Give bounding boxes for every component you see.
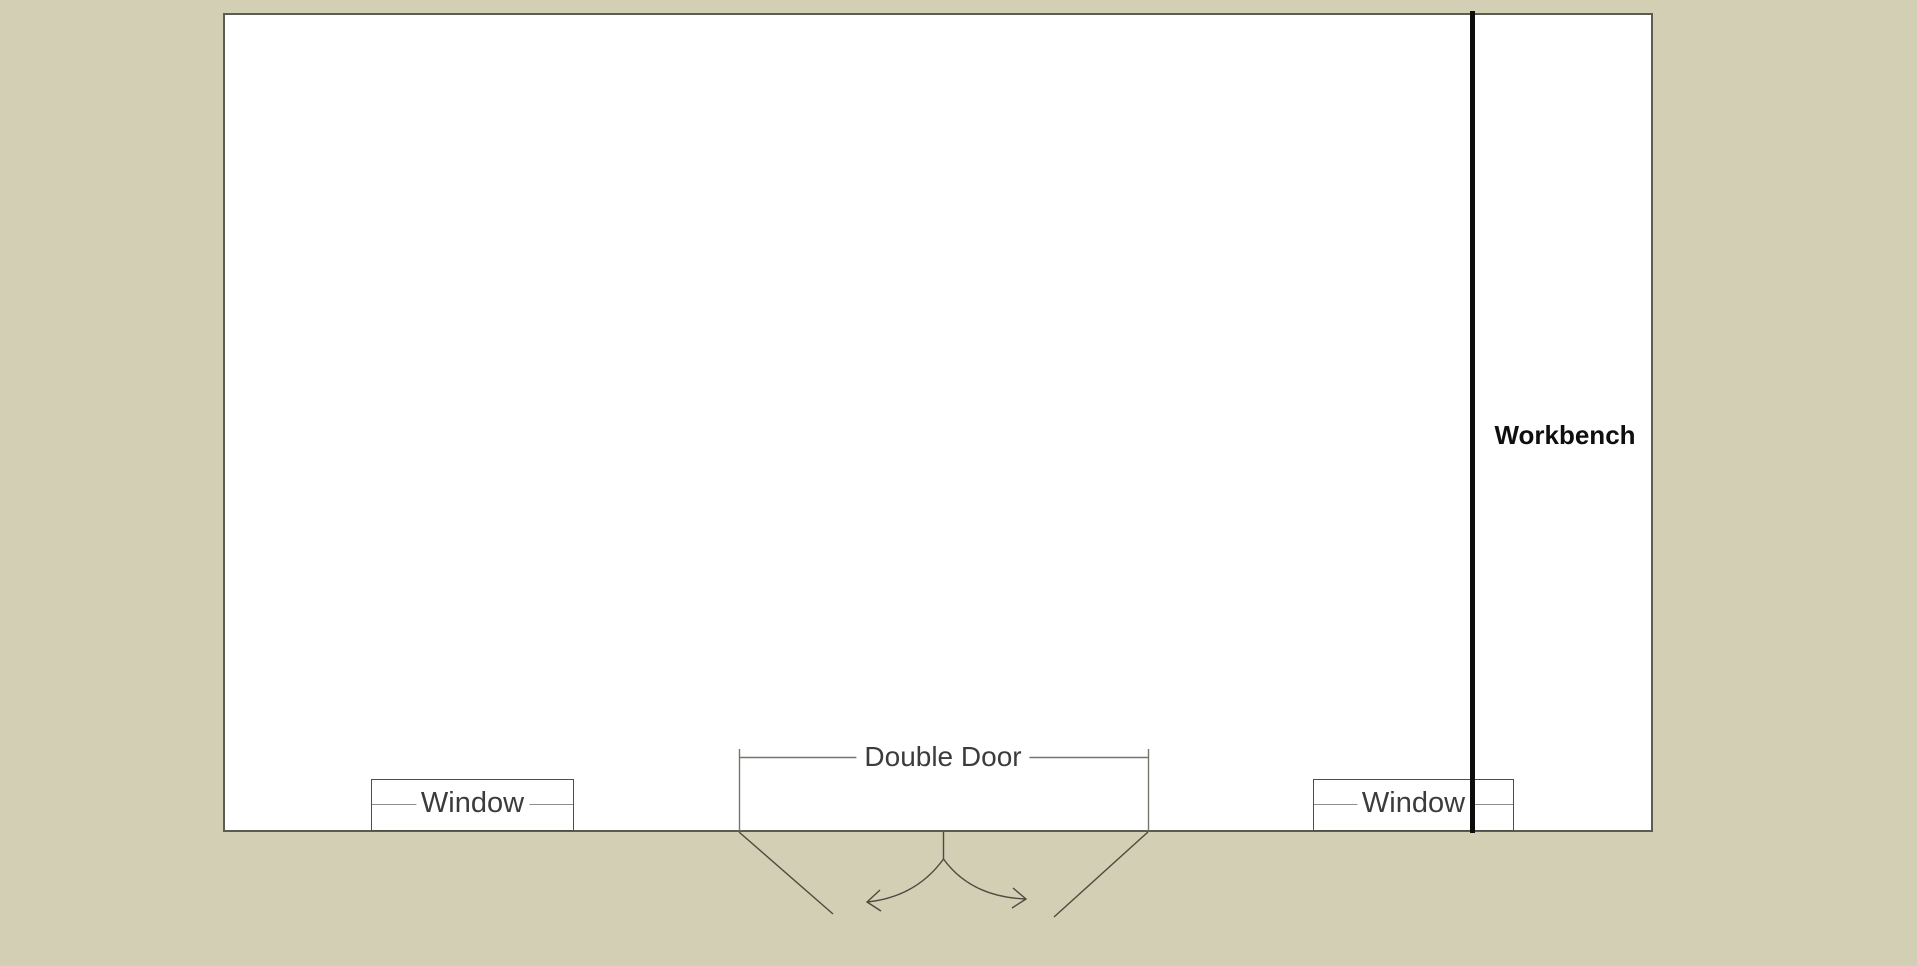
window-right-label: Window	[1357, 787, 1470, 820]
door-leaf-right-line	[1054, 832, 1148, 917]
door-swing-arrowhead-left	[867, 890, 881, 911]
floorplan-canvas: Window Window Workbench Double Door	[0, 0, 1917, 966]
window-left: Window	[371, 779, 574, 831]
workbench-label: Workbench	[1477, 420, 1653, 451]
door-swing-arc-right	[944, 859, 1027, 899]
room-outline	[223, 13, 1653, 832]
door-swing-arrowhead-right	[1012, 888, 1026, 908]
door-leaf-left-line	[739, 832, 833, 914]
window-right: Window	[1313, 779, 1514, 831]
door-swing-arc-left	[867, 859, 944, 902]
double-door-label: Double Door	[856, 741, 1029, 773]
workbench-divider-line	[1470, 11, 1475, 833]
window-left-label: Window	[416, 787, 529, 820]
